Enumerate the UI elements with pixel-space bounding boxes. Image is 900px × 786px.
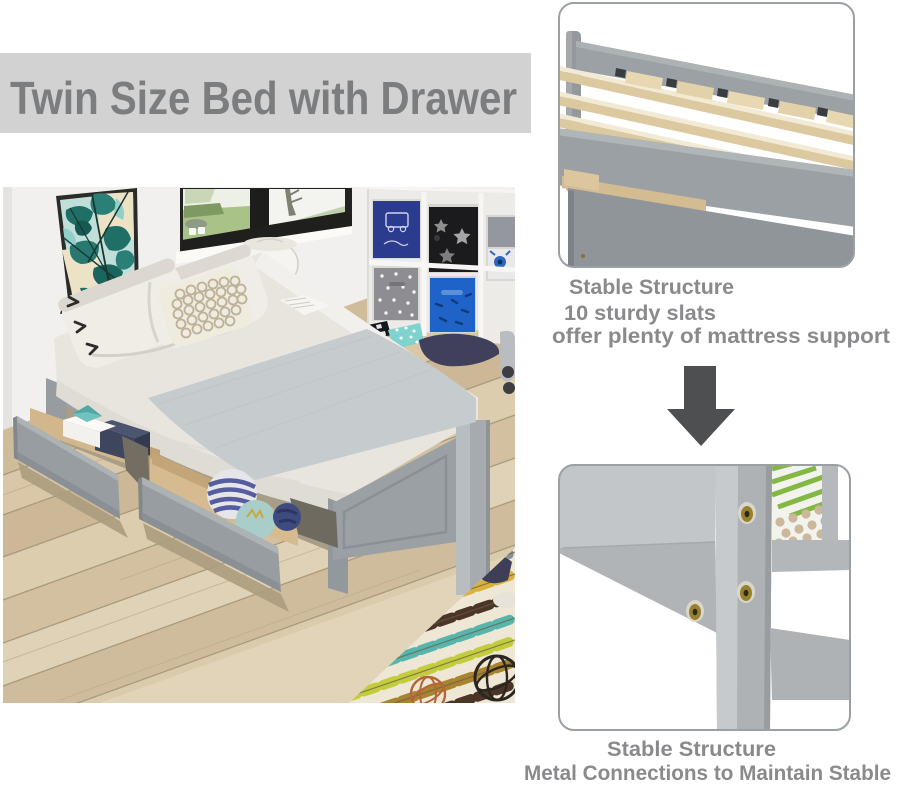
svg-text:offer plenty of mattress suppo: offer plenty of mattress support	[552, 325, 890, 348]
svg-text:Stable Structure: Stable Structure	[607, 738, 776, 761]
svg-text:Twin Size Bed with Drawer: Twin Size Bed with Drawer	[10, 72, 517, 124]
svg-text:Metal Connections to Maintain: Metal Connections to Maintain Stable	[524, 762, 891, 785]
svg-text:Stable Structure: Stable Structure	[569, 276, 734, 299]
svg-text:10 sturdy slats: 10 sturdy slats	[564, 302, 716, 325]
